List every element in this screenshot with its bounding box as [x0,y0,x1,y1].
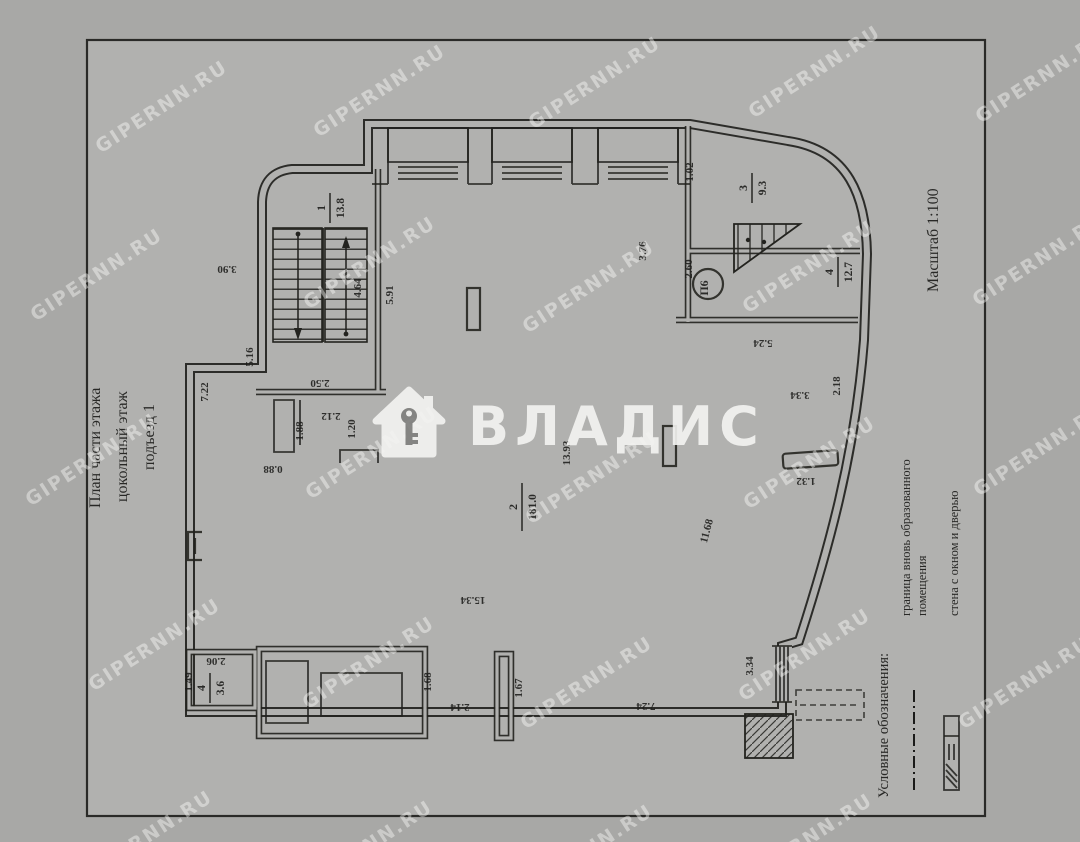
dimension-label: 7.24 [636,700,656,712]
dimension-label: 2.14 [450,701,470,713]
dimension-label: 1.02 [684,162,696,182]
room-number: 3 [736,185,750,191]
dimension-label: 1.67 [513,678,525,698]
dimension-label: 1.88 [294,421,306,441]
dimension-label: 2.18 [831,376,843,396]
dimension-label: 15.34 [460,594,485,606]
floor-plan-scan: План части этажа цокольный этаж подъезд … [0,0,1080,842]
dimension-label: 2.06 [206,655,226,667]
room-number: 4 [194,685,208,691]
legend-item1-line2: помещения [915,555,929,616]
room-area: 3.6 [215,681,227,696]
vladis-logo-text: ВЛАДИС [468,395,765,458]
dimension-label: 3.90 [217,263,237,275]
room-area: 13.8 [335,198,347,218]
legend-item1-line1: граница вновь образованного [899,459,913,616]
hatch-circle-label: П6 [697,280,711,295]
scanned-floor-plan-page: План части этажа цокольный этаж подъезд … [0,0,1080,842]
legend-title: Условные обозначения: [876,653,892,798]
stair-start-dot [344,332,349,337]
scale-label: Масштаб 1:100 [925,188,942,292]
dimension-label: 1.20 [346,419,358,439]
stair-dot [762,240,766,244]
dimension-label: 2.12 [321,410,341,422]
room-number: 1 [314,205,328,211]
gipernn-watermark: GIPERNN.RU [971,26,1080,128]
dimension-label: 0.88 [263,463,283,475]
dimension-label: 5.91 [384,285,396,304]
stair-dot [746,238,750,242]
dimension-label: 7.22 [199,382,211,402]
dimension-label: 1.49 [183,672,195,692]
foundation-hatch [745,714,793,758]
stair-start-dot [296,232,301,237]
dimension-label: 3.34 [744,656,756,676]
dimension-label: 3.34 [790,389,810,401]
legend-item2-line1: стена с окном и дверью [947,491,961,617]
room-number: 2 [506,504,520,510]
dimension-label: 2.60 [683,259,695,279]
dimension-label: 5.16 [244,347,256,367]
scale-block: Масштаб 1:100 [925,188,942,292]
dimension-label: 1.68 [422,672,434,692]
dimension-label: 5.24 [753,337,773,349]
room-area: 9.3 [757,181,769,196]
dimension-label: 2.50 [310,377,330,389]
room-area: 12.7 [843,262,855,282]
